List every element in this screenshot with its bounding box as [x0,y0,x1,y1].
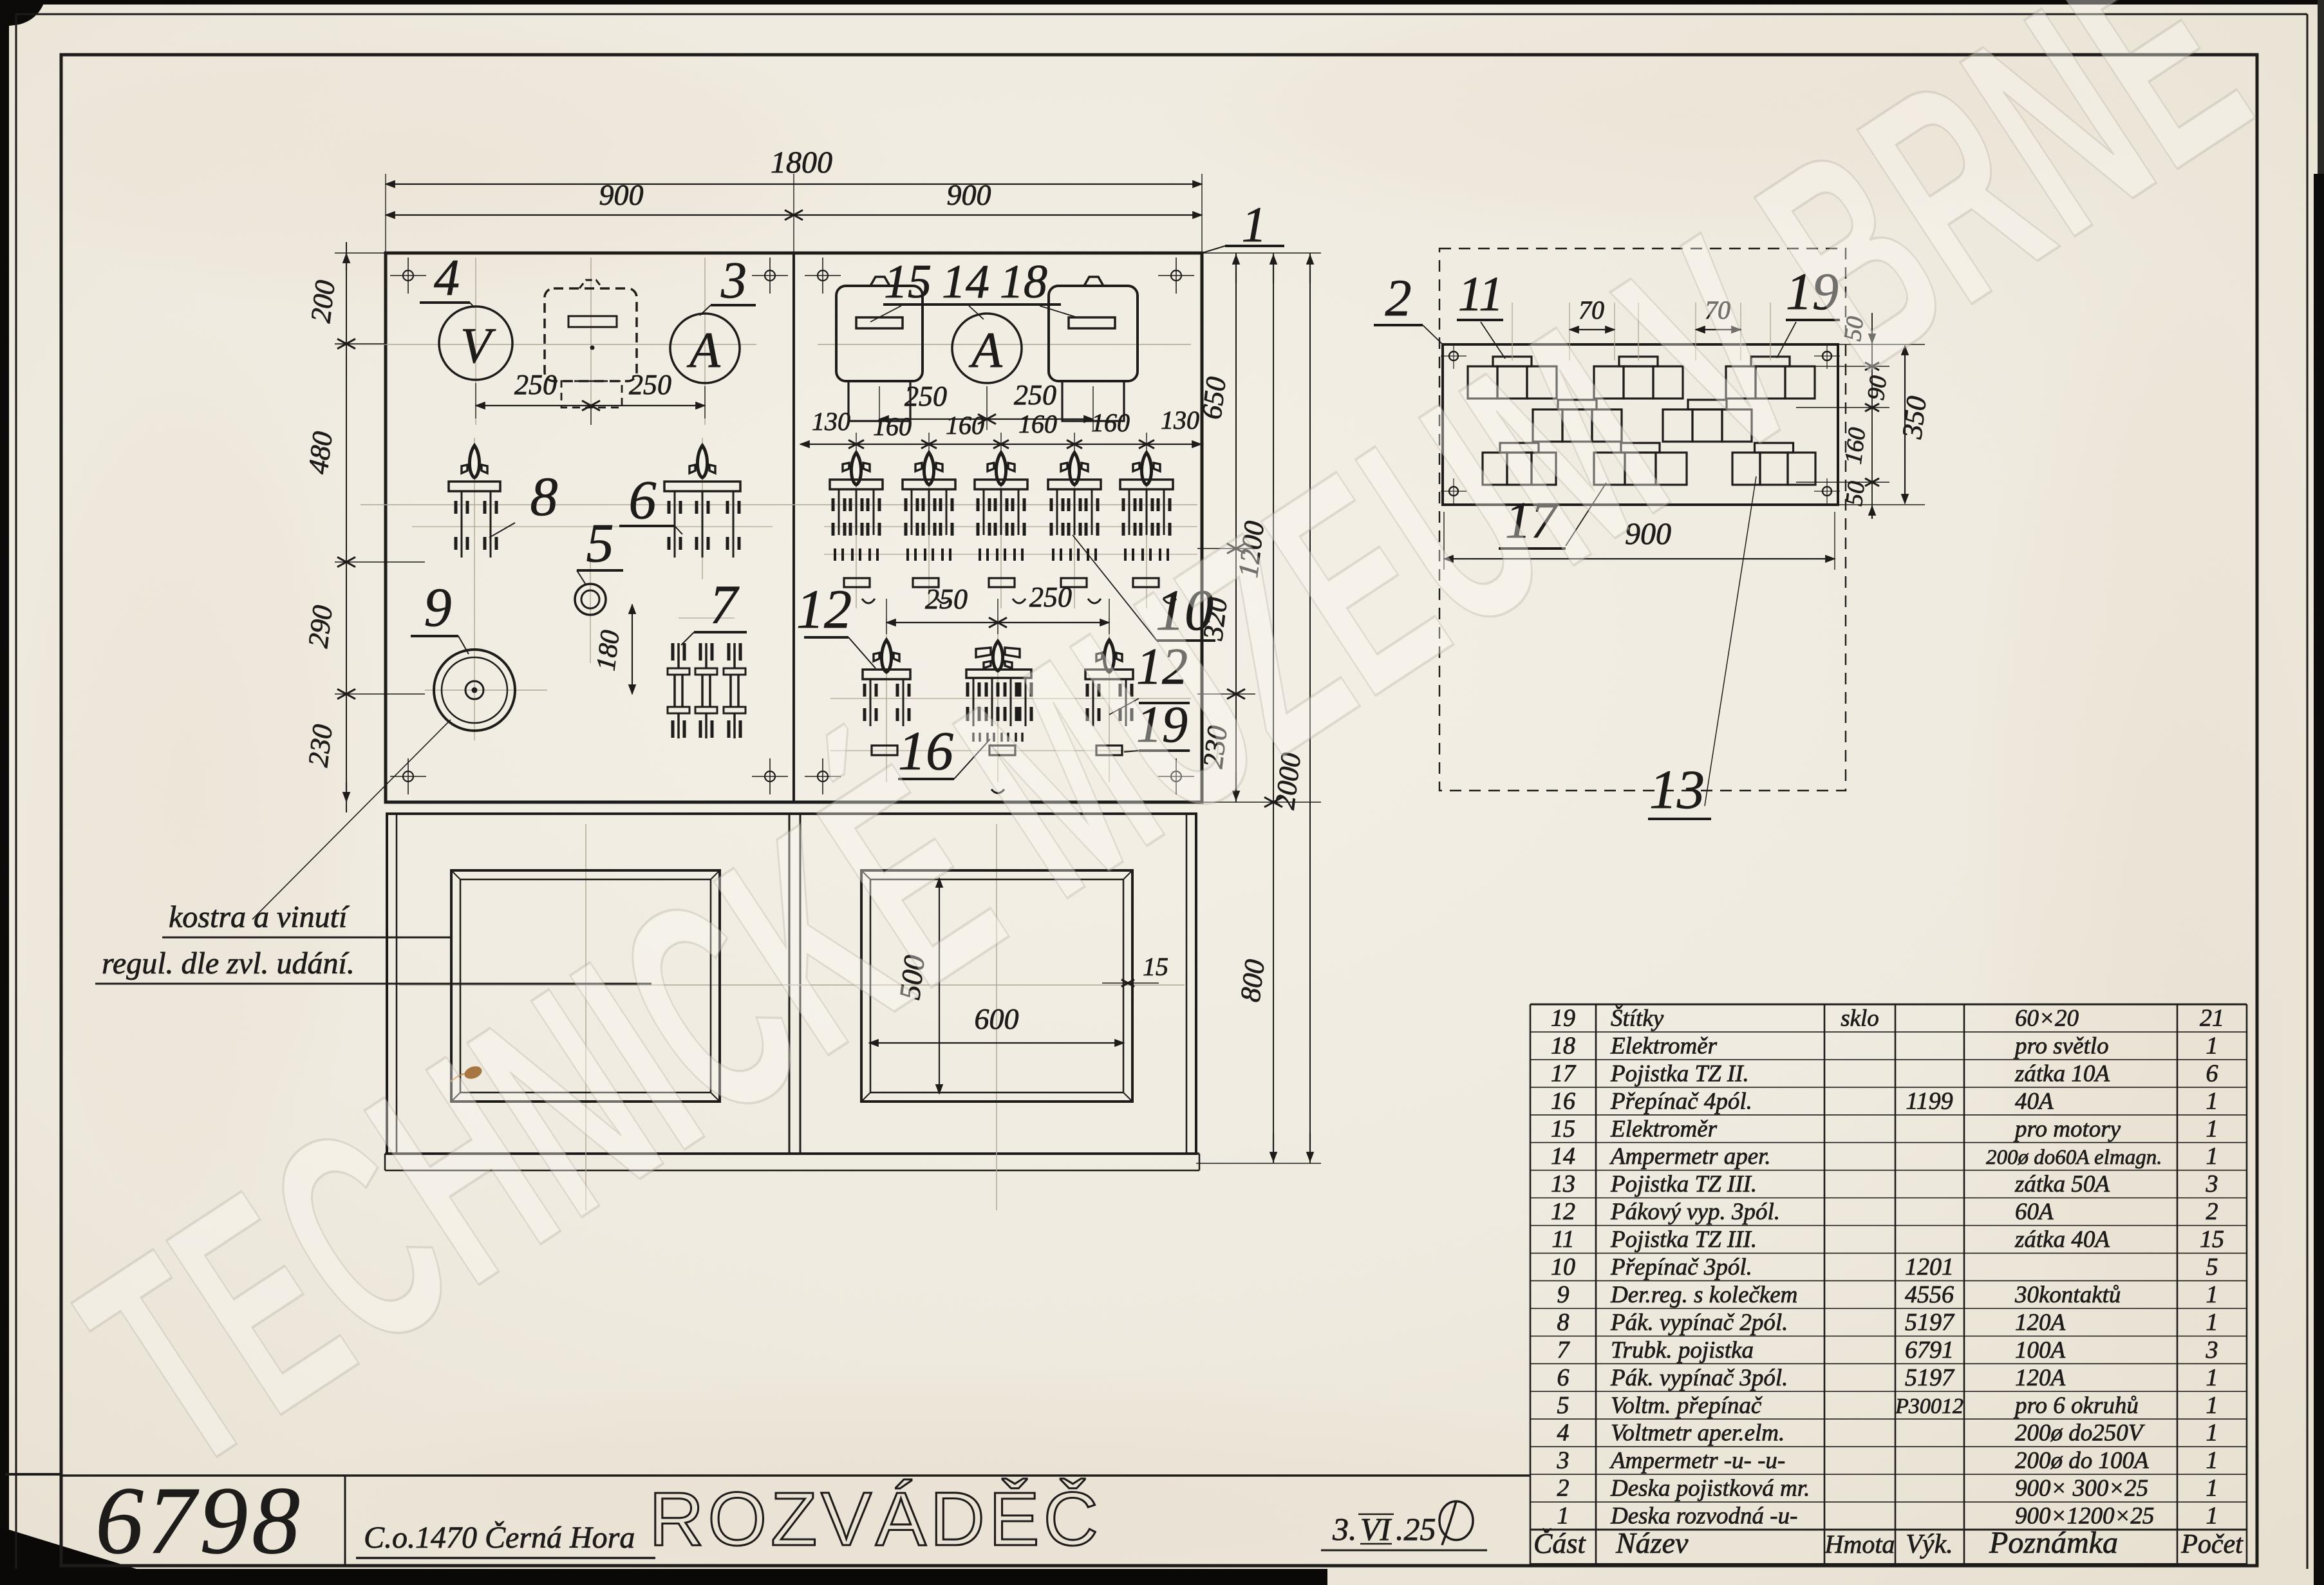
svg-text:2: 2 [1385,268,1412,327]
svg-text:6: 6 [1557,1364,1570,1391]
svg-text:V: V [460,317,496,373]
svg-text:8: 8 [1557,1309,1570,1336]
svg-text:zátka 40A: zátka 40A [2014,1226,2110,1253]
svg-text:Hmota: Hmota [1824,1530,1895,1559]
svg-text:200ø do60A elmagn.: 200ø do60A elmagn. [1986,1146,2162,1169]
svg-text:Přepínač 4pól.: Přepínač 4pól. [1610,1088,1752,1114]
svg-text:Ampermetr aper.: Ampermetr aper. [1609,1143,1771,1170]
svg-text:60A: 60A [2015,1199,2054,1225]
svg-text:100A: 100A [2015,1337,2066,1364]
svg-text:1: 1 [2206,1392,2218,1419]
svg-text:480: 480 [302,429,339,475]
svg-text:sklo: sklo [1841,1005,1879,1031]
svg-text:regul. dle zvl. udání.: regul. dle zvl. udání. [102,946,355,980]
svg-text:15: 15 [884,256,932,308]
svg-text:5: 5 [1557,1392,1570,1419]
svg-text:Poznámka: Poznámka [1989,1526,2118,1560]
svg-text:Deska pojistková mr.: Deska pojistková mr. [1610,1476,1810,1502]
svg-text:200ø do250V: 200ø do250V [2015,1420,2146,1447]
svg-text:18: 18 [1000,256,1047,308]
svg-text:Voltmetr aper.elm.: Voltmetr aper.elm. [1611,1420,1785,1447]
svg-text:zátka 50A: zátka 50A [2014,1171,2110,1197]
svg-text:9: 9 [1557,1281,1570,1308]
svg-text:15: 15 [1143,952,1168,981]
svg-text:250: 250 [904,380,947,412]
svg-text:6: 6 [2206,1060,2218,1087]
svg-text:1: 1 [2206,1420,2218,1447]
svg-text:kostra a vinutí: kostra a vinutí [169,900,350,934]
svg-text:11: 11 [1551,1226,1574,1253]
svg-text:17: 17 [1551,1060,1577,1087]
svg-text:P30012: P30012 [1895,1394,1963,1418]
svg-text:250: 250 [514,369,557,400]
svg-text:1: 1 [2206,1032,2218,1059]
svg-text:9: 9 [424,576,452,638]
svg-text:120A: 120A [2015,1365,2066,1391]
svg-text:Der.reg. s kolečkem: Der.reg. s kolečkem [1610,1282,1797,1308]
svg-text:5: 5 [2206,1253,2218,1280]
svg-text:Pojistka TZ III.: Pojistka TZ III. [1610,1226,1757,1253]
svg-text:3: 3 [1557,1447,1570,1474]
svg-text:Trubk. pojistka: Trubk. pojistka [1611,1337,1754,1364]
svg-text:4: 4 [434,250,460,306]
svg-text:3.: 3. [1332,1511,1357,1547]
svg-text:ROZVÁDĚČ: ROZVÁDĚČ [649,1477,1102,1562]
svg-text:Název: Název [1615,1526,1689,1559]
svg-text:Pojistka TZ III.: Pojistka TZ III. [1610,1171,1757,1197]
svg-text:.25: .25 [1396,1511,1436,1547]
svg-text:900: 900 [599,178,644,211]
svg-text:1: 1 [2206,1087,2218,1114]
svg-text:180: 180 [591,628,625,672]
svg-text:200: 200 [305,278,341,324]
svg-text:2: 2 [2206,1198,2218,1225]
svg-text:1: 1 [1242,196,1267,252]
svg-text:1: 1 [2206,1115,2218,1142]
svg-text:6: 6 [629,469,657,530]
svg-text:200ø do 100A: 200ø do 100A [2015,1448,2149,1474]
svg-text:160: 160 [1091,408,1130,437]
svg-text:230: 230 [302,722,339,768]
svg-text:250: 250 [629,369,671,400]
svg-text:pro světlo: pro světlo [2013,1033,2109,1059]
svg-text:12: 12 [796,578,852,640]
svg-text:7: 7 [710,574,740,635]
svg-text:Výk.: Výk. [1906,1530,1953,1559]
svg-text:Štítky: Štítky [1611,1004,1664,1031]
svg-text:Pák. vypínač 3pól.: Pák. vypínač 3pól. [1610,1365,1788,1391]
svg-text:16: 16 [1551,1087,1575,1114]
svg-text:12: 12 [1551,1198,1575,1225]
svg-text:VI: VI [1360,1511,1392,1547]
svg-text:10: 10 [1551,1253,1575,1280]
svg-text:160: 160 [873,412,912,441]
svg-text:Ampermetr -u- -u-: Ampermetr -u- -u- [1609,1448,1785,1474]
svg-text:250: 250 [925,583,968,615]
svg-text:40A: 40A [2015,1088,2054,1114]
svg-text:5: 5 [586,512,614,574]
svg-text:30kontaktů: 30kontaktů [2014,1282,2121,1308]
svg-text:C.o.1470 Černá Hora: C.o.1470 Černá Hora [364,1520,635,1555]
svg-text:1201: 1201 [1905,1253,1954,1280]
svg-text:50: 50 [1841,480,1870,507]
svg-text:120A: 120A [2015,1309,2066,1336]
svg-text:160: 160 [1018,409,1057,438]
svg-text:1: 1 [2206,1143,2218,1170]
svg-text:130: 130 [812,407,850,436]
svg-text:800: 800 [1234,957,1271,1003]
svg-text:pro 6 okruhů: pro 6 okruhů [2013,1393,2139,1419]
svg-text:1: 1 [2206,1503,2218,1530]
svg-text:13: 13 [1551,1170,1575,1197]
svg-text:900: 900 [947,178,991,211]
svg-text:Pák. vypínač 2pól.: Pák. vypínač 2pól. [1610,1309,1788,1336]
svg-text:290: 290 [302,603,339,649]
svg-text:15: 15 [2200,1226,2224,1253]
svg-text:19: 19 [1551,1004,1575,1031]
svg-text:3: 3 [2206,1170,2218,1197]
svg-text:Voltm. přepínač: Voltm. přepínač [1611,1393,1763,1419]
svg-text:A: A [968,322,1002,378]
svg-text:60×20: 60×20 [2015,1005,2079,1031]
svg-text:7: 7 [1557,1336,1571,1364]
svg-text:1: 1 [2206,1364,2218,1391]
svg-text:8: 8 [530,465,558,527]
svg-text:18: 18 [1551,1032,1575,1059]
svg-text:14: 14 [942,256,989,308]
svg-text:650: 650 [1195,375,1232,420]
svg-text:3: 3 [720,252,747,309]
svg-text:3: 3 [2206,1336,2218,1364]
svg-text:1800: 1800 [771,145,832,180]
svg-text:pro motory: pro motory [2013,1116,2121,1142]
svg-text:900× 300×25: 900× 300×25 [2015,1476,2148,1502]
svg-text:Počet: Počet [2180,1530,2244,1559]
svg-text:1: 1 [1557,1503,1570,1530]
svg-text:Část: Část [1533,1528,1586,1559]
svg-text:130: 130 [1161,406,1199,435]
svg-text:Pákový vyp. 3pól.: Pákový vyp. 3pól. [1610,1199,1780,1225]
svg-text:A: A [686,322,720,378]
svg-text:160: 160 [946,411,984,440]
svg-text:250: 250 [1014,379,1056,411]
svg-text:Elektroměr: Elektroměr [1610,1116,1718,1142]
svg-text:Přepínač 3pól.: Přepínač 3pól. [1610,1254,1752,1280]
svg-text:5197: 5197 [1905,1364,1955,1391]
svg-text:4: 4 [1557,1420,1570,1447]
svg-text:5197: 5197 [1905,1309,1955,1336]
svg-text:Deska rozvodná -u-: Deska rozvodná -u- [1610,1503,1797,1530]
svg-text:15: 15 [1551,1115,1575,1142]
svg-text:1: 1 [2206,1281,2218,1308]
svg-text:1: 1 [2206,1475,2218,1502]
svg-text:21: 21 [2200,1004,2224,1031]
svg-text:1: 1 [2206,1309,2218,1336]
svg-text:13: 13 [1649,758,1705,820]
svg-text:zátka 10A: zátka 10A [2014,1060,2110,1087]
svg-text:14: 14 [1551,1143,1575,1170]
svg-text:4556: 4556 [1905,1281,1954,1308]
svg-text:1199: 1199 [1906,1087,1953,1114]
svg-text:6791: 6791 [1905,1336,1954,1364]
svg-text:Pojistka TZ II.: Pojistka TZ II. [1610,1060,1749,1087]
svg-text:Elektroměr: Elektroměr [1610,1033,1718,1059]
svg-text:2: 2 [1557,1475,1570,1502]
svg-text:1: 1 [2206,1447,2218,1474]
